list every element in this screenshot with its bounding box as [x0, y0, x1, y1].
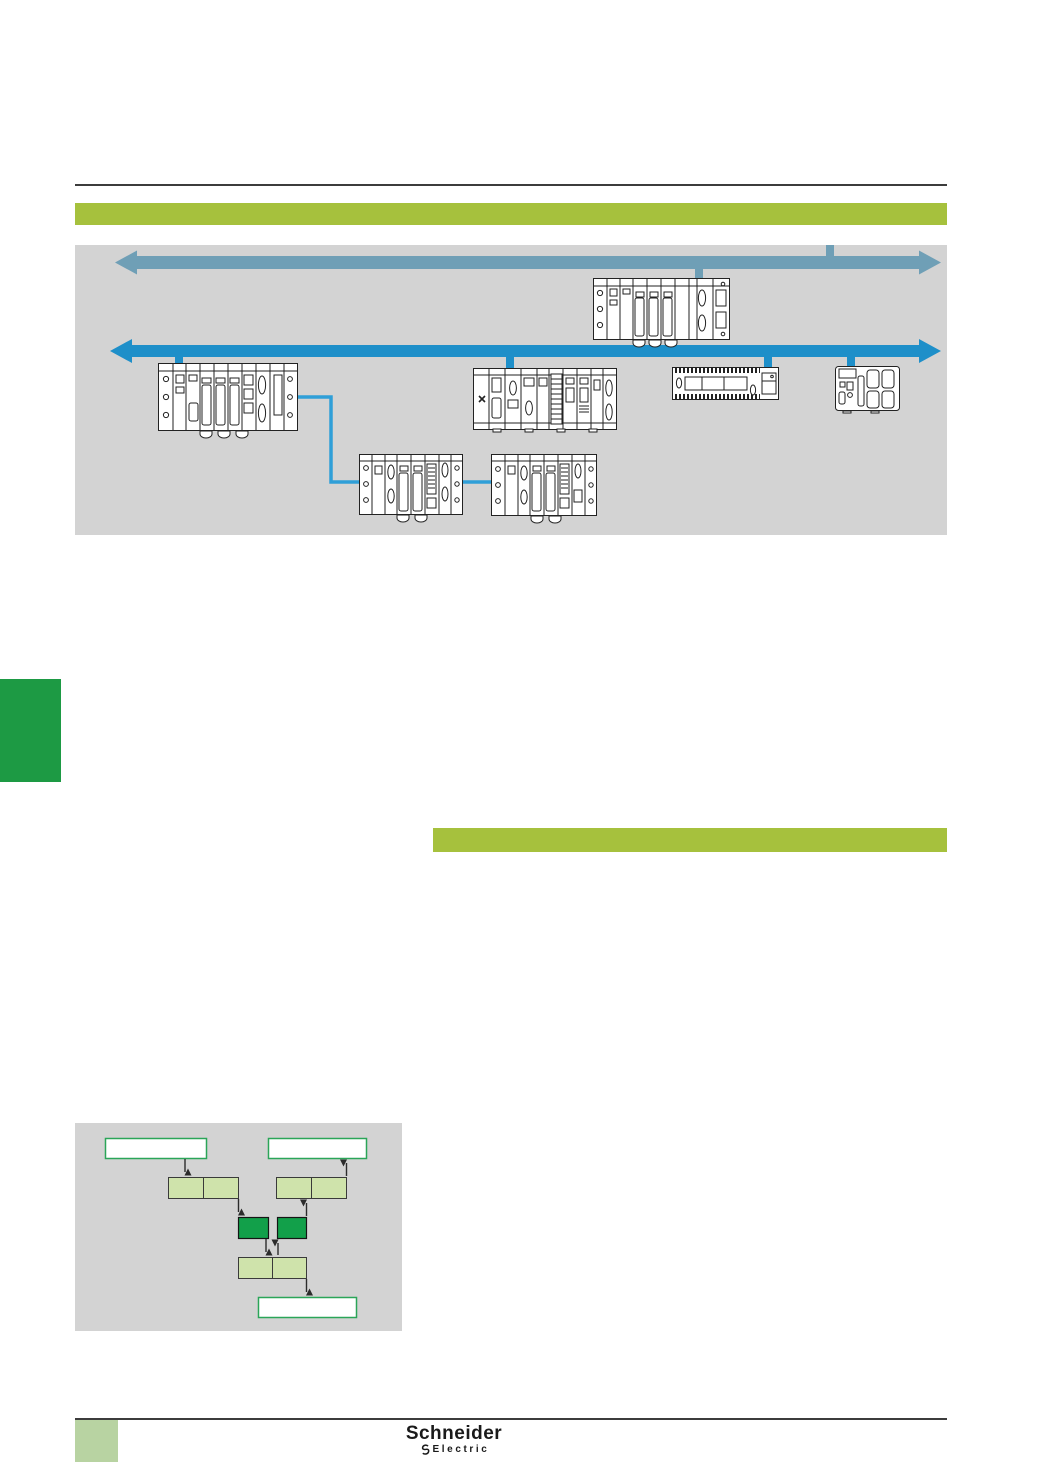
- data-exchange-flowchart-panel: [75, 1123, 402, 1331]
- footer-rule: [75, 1418, 947, 1420]
- section-title-banner: [75, 203, 947, 225]
- upper-backbone-bus: [115, 245, 941, 280]
- process-cell-left: [239, 1218, 269, 1239]
- drop-to-compact-controller: [847, 356, 855, 367]
- brand-monogram-icon: [419, 1443, 431, 1456]
- data-exchange-flowchart: [75, 1123, 402, 1331]
- remote-io-rack-2: [492, 455, 597, 524]
- process-cell-right: [278, 1218, 307, 1239]
- header-rule: [75, 184, 947, 186]
- network-architecture-panel: [75, 245, 947, 535]
- network-architecture-diagram: [75, 245, 947, 535]
- brand-sub-name: Electric: [433, 1444, 490, 1455]
- compact-controller: [836, 367, 900, 414]
- brand-logo: Schneider Electric: [392, 1424, 516, 1456]
- output-box-top-right: [269, 1139, 367, 1159]
- io-rack-center: [474, 369, 617, 433]
- flat-io-base: [673, 368, 779, 400]
- subsection-title-banner: [433, 828, 947, 852]
- input-box-top-left: [106, 1139, 207, 1159]
- result-box-bottom: [259, 1298, 357, 1318]
- remote-io-rack-1: [360, 455, 463, 523]
- plc-rack-top: [594, 279, 730, 348]
- bus-stub-up: [826, 245, 834, 257]
- drop-to-io-base: [764, 356, 772, 368]
- brand-name: Schneider: [392, 1424, 516, 1443]
- plc-rack-left: [159, 364, 298, 439]
- footer-page-tab: [75, 1420, 118, 1462]
- chapter-tab-marker: [0, 679, 61, 782]
- drop-to-center-rack: [506, 356, 514, 369]
